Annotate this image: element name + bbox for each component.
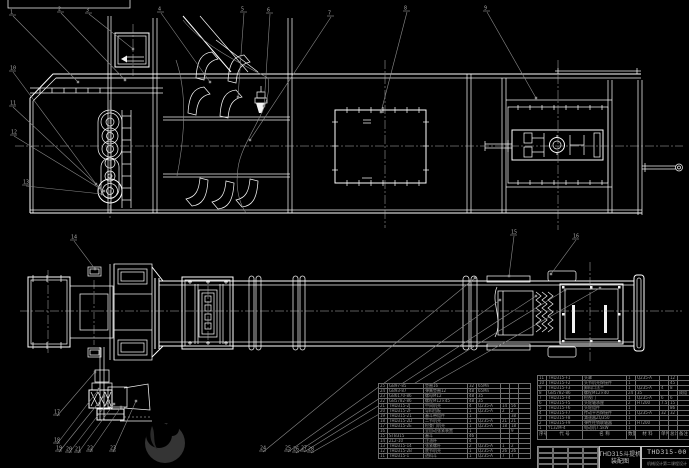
leader-arrowhead (380, 111, 382, 113)
bom-table-right: 11 THD315-F1 头罩 1 Q235-A 12 10 THD315-F2… (537, 375, 689, 440)
bom-cell-qty: 1 (468, 454, 477, 459)
leader-arrowhead (98, 388, 100, 390)
leader-arrowhead (94, 371, 96, 373)
balloon-label: 4 (158, 7, 161, 13)
balloon-label: 7 (328, 11, 331, 17)
balloon-label: 15 (511, 230, 517, 236)
balloon-label: 8 (404, 6, 407, 12)
drawing-title-line1: THD315斗提机 (599, 451, 641, 458)
leader-arrowhead (94, 268, 96, 270)
drawing-title-line2: 装配图 (611, 458, 629, 465)
bom-cell-unit-weight: 7 (501, 454, 510, 459)
chain-guide-ladder (122, 110, 131, 208)
leader-line (264, 14, 270, 106)
bom-cell-no: 11 (379, 454, 388, 459)
buckets (186, 52, 258, 209)
bom-cell-note (519, 454, 531, 459)
balloon-label: 19 (56, 446, 62, 452)
organization: 机械设计第二课程设计 (642, 459, 689, 468)
leader-arrowhead (108, 400, 110, 402)
leader-arrowhead (77, 81, 79, 83)
signature-grid (537, 446, 599, 468)
leader-arrowhead (113, 403, 115, 405)
drawing-number-cell: THD315-00 机械设计第二课程设计 (641, 446, 689, 468)
mid-casing-door (332, 74, 471, 213)
balloon-label: 20 (66, 447, 72, 453)
bom-row: 11 THD315-1 进料斗 1 Q235-A 7 7 (379, 454, 531, 459)
balloon-label: 24 (260, 446, 266, 452)
leader-line (13, 16, 78, 82)
bottom-view-centerlines (20, 262, 682, 362)
cad-canvas: 1234567891011121314151617181920212223242… (0, 0, 689, 468)
bom-header-name: 名 称 (583, 431, 627, 440)
bom-cell-total-weight: 7 (510, 454, 519, 459)
leader-line (551, 240, 576, 274)
leader-arrowhead (135, 400, 137, 402)
leader-arrowhead (132, 48, 134, 50)
title-block: THD315斗提机 装配图 THD315-00 机械设计第二课程设计 (537, 446, 689, 468)
bom-cell-name: 进料斗 (424, 454, 468, 459)
balloon-label: 6 (267, 8, 270, 14)
leader-line (74, 241, 95, 269)
leader-line (59, 396, 104, 452)
casing-flanges (249, 276, 477, 350)
leader-arrowhead (103, 190, 105, 192)
balloon-label: 11 (10, 101, 16, 107)
leader-arrowhead (499, 299, 501, 301)
leader-line (250, 17, 331, 140)
leader-arrowhead (124, 79, 126, 81)
leader-line (487, 12, 536, 98)
balloon-label: 12 (11, 130, 17, 136)
leader-line (26, 186, 102, 194)
leader-arrowhead (237, 96, 239, 98)
balloon-label: 2 (58, 7, 61, 13)
bom-header-qty: 数量 (627, 431, 636, 440)
leader-arrowhead (599, 287, 601, 289)
bom-header-row: 序号 代 号 名 称 数量 材 料 单件 总计 备注 (538, 431, 689, 440)
drawing-title: THD315斗提机 装配图 (599, 446, 641, 468)
leader-line (57, 389, 99, 444)
leader-line (13, 107, 100, 188)
bom-header-unit-weight: 单件 (660, 431, 669, 440)
inlet-chute (183, 16, 258, 72)
leader-arrowhead (535, 97, 537, 99)
balloon-label: 22 (87, 446, 93, 452)
leader-line (13, 72, 96, 184)
leader-arrowhead (508, 275, 510, 277)
leader-arrowhead (120, 406, 122, 408)
bom-header-total-weight: 总计 (669, 431, 678, 440)
leader-arrowhead (209, 81, 211, 83)
leader-arrowhead (535, 295, 537, 297)
bom-header-no: 序号 (538, 431, 547, 440)
drawing-number: THD315-00 (642, 447, 689, 459)
takeup-rod-right (642, 163, 683, 172)
bom-cell-unit-weight: 7.5 (660, 401, 669, 406)
balloon-label: 3 (86, 8, 89, 14)
bom-header-note: 备注 (678, 431, 689, 440)
leader-arrowhead (564, 289, 566, 291)
bolted-cover-section (182, 277, 233, 349)
leader-arrowhead (474, 277, 476, 279)
balloon-label: 10 (10, 66, 16, 72)
leader-line (509, 236, 514, 276)
leader-arrowhead (249, 139, 251, 141)
balloon-label: 17 (54, 410, 60, 416)
balloon-label: 5 (241, 7, 244, 13)
leader-arrowhead (103, 395, 105, 397)
bom-cell-mat: Q235-A (477, 454, 501, 459)
balloon-label: 23 (110, 446, 116, 452)
leader-arrowhead (101, 193, 103, 195)
leader-arrowhead (263, 105, 265, 107)
drive-unit-plan (89, 347, 152, 421)
frame-corner (8, 0, 130, 8)
balloon-label: 25 (285, 446, 291, 452)
bom-cell-code: THD315-1 (388, 454, 424, 459)
bom-header-mat: 材 料 (636, 431, 660, 440)
balloon-label: 1 (10, 10, 13, 16)
balloon-label: 18 (54, 438, 60, 444)
bom-header-code: 代 号 (547, 431, 583, 440)
coupling-assembly (524, 133, 600, 157)
rib-ladder (40, 88, 100, 93)
balloon-label: 13 (23, 180, 29, 186)
balloon-label: 21 (75, 447, 81, 453)
balloon-label: 26 (293, 447, 299, 453)
leader-arrowhead (550, 273, 552, 275)
leader-line (78, 404, 114, 453)
balloon-label: 16 (573, 234, 579, 240)
balloon-label: 27 (301, 446, 307, 452)
balloon-label: 28 (308, 447, 314, 453)
balloon-label: 14 (71, 235, 77, 241)
balloon-label: 9 (484, 6, 487, 12)
top-view (15, 16, 683, 230)
watermark-logo (142, 420, 186, 464)
drive-section (485, 68, 683, 215)
bom-table-left: 25 GB97-85 垫圈16 32 65Mn 24 GB93-87 弹簧垫圈1… (378, 383, 531, 459)
